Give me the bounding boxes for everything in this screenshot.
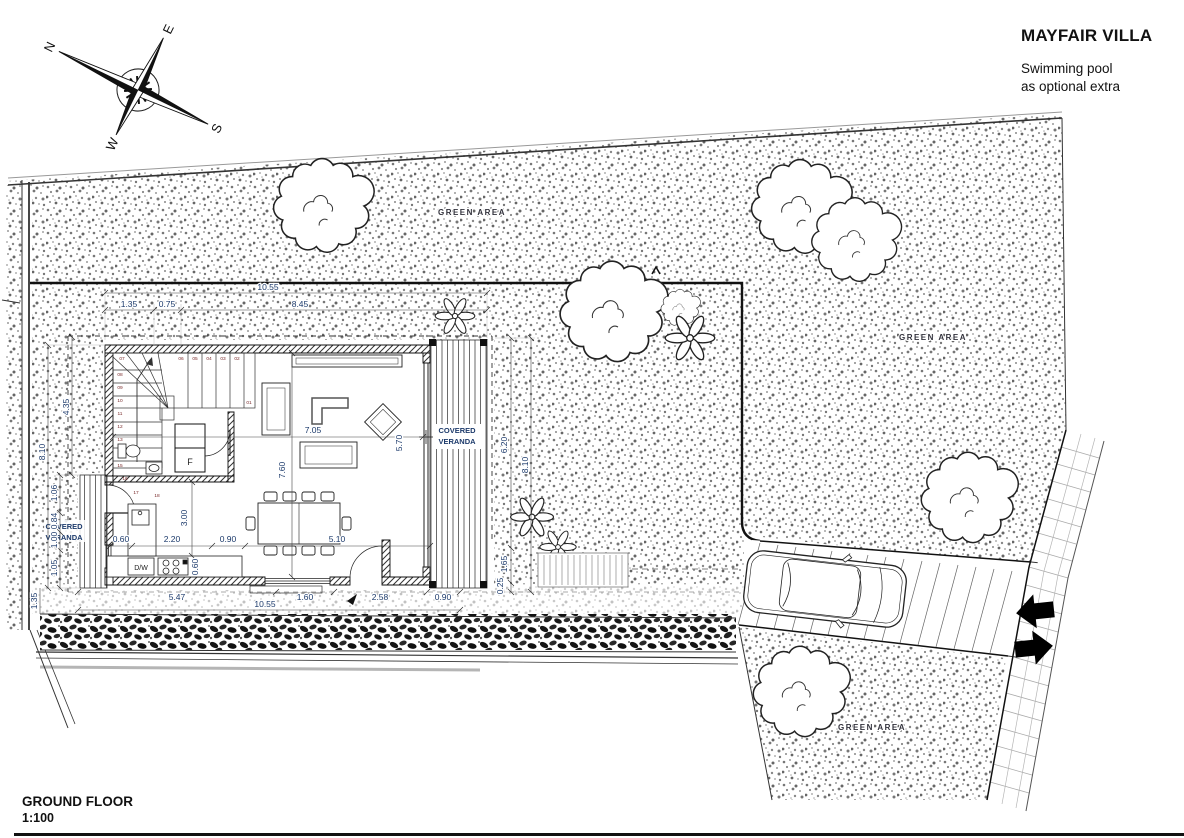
- svg-text:0.60: 0.60: [190, 558, 200, 575]
- svg-text:3.00: 3.00: [179, 509, 189, 526]
- svg-text:10.55: 10.55: [257, 282, 279, 292]
- green-area-label-3: GREEN AREA: [838, 723, 906, 732]
- svg-text:08: 08: [117, 372, 123, 378]
- svg-text:07: 07: [119, 356, 125, 362]
- svg-text:01: 01: [246, 400, 252, 406]
- covered-veranda-right: COVERED VERANDA: [429, 339, 487, 588]
- veranda-right-label-1: COVERED: [438, 426, 476, 435]
- svg-text:5.70: 5.70: [394, 434, 404, 451]
- svg-text:1.00: 1.00: [49, 531, 59, 548]
- page-title: MAYFAIR VILLA: [1021, 26, 1181, 46]
- svg-text:10.55: 10.55: [254, 599, 276, 609]
- svg-text:15: 15: [117, 463, 123, 469]
- svg-text:12: 12: [117, 424, 123, 430]
- svg-text:16: 16: [122, 476, 128, 482]
- svg-text:10: 10: [117, 398, 123, 404]
- drawing-footer: GROUND FLOOR 1:100: [22, 794, 133, 825]
- svg-text:1.05: 1.05: [49, 559, 59, 576]
- svg-text:0.84: 0.84: [49, 512, 59, 529]
- plan-name: GROUND FLOOR: [22, 794, 133, 809]
- compass-rose: N E S W: [14, 0, 256, 191]
- compass-east-label: E: [160, 22, 177, 37]
- svg-text:11: 11: [118, 411, 123, 417]
- svg-text:4.35: 4.35: [61, 398, 71, 415]
- svg-text:2.20: 2.20: [164, 534, 181, 544]
- page-bottom-rule: [14, 833, 1184, 836]
- green-area-label-2: GREEN AREA: [899, 333, 967, 342]
- svg-text:8.10: 8.10: [520, 456, 530, 473]
- svg-text:17: 17: [133, 490, 139, 496]
- subtitle-line-1: Swimming pool: [1021, 61, 1113, 76]
- svg-text:1.35: 1.35: [121, 299, 138, 309]
- compass-south-label: S: [208, 121, 225, 136]
- title-block: MAYFAIR VILLA Swimming pool as optional …: [1021, 26, 1181, 96]
- svg-text:0.60: 0.60: [113, 534, 130, 544]
- svg-text:1.65: 1.65: [499, 555, 509, 572]
- svg-text:6.20: 6.20: [499, 436, 509, 453]
- dishwasher-label: D/W: [134, 565, 148, 572]
- svg-text:7.60: 7.60: [277, 461, 287, 478]
- toilet-tank: [118, 444, 126, 458]
- svg-text:03: 03: [220, 356, 226, 362]
- svg-text:0.25: 0.25: [495, 577, 505, 594]
- site-plan-drawing: GREEN AREA GREEN AREA GREEN AREA: [0, 0, 1184, 838]
- fridge-label: F: [187, 457, 193, 467]
- house: COVERED VERANDA COVERED VERANDA: [44, 336, 494, 605]
- svg-text:2.58: 2.58: [372, 592, 389, 602]
- toilet: [126, 445, 140, 457]
- green-area-label-1: GREEN AREA: [438, 208, 506, 217]
- svg-text:1.35: 1.35: [29, 592, 39, 609]
- svg-text:13: 13: [117, 437, 123, 443]
- svg-text:8.45: 8.45: [292, 299, 309, 309]
- plan-scale: 1:100: [22, 811, 133, 825]
- compass-north-label: N: [41, 39, 59, 54]
- ramp: [538, 553, 628, 587]
- svg-text:8.10: 8.10: [37, 443, 47, 460]
- svg-text:0.90: 0.90: [220, 534, 237, 544]
- svg-text:5.47: 5.47: [169, 592, 186, 602]
- svg-text:04: 04: [206, 356, 212, 362]
- svg-text:1.60: 1.60: [297, 592, 314, 602]
- svg-text:1.06: 1.06: [49, 484, 59, 501]
- subtitle-line-2: as optional extra: [1021, 79, 1120, 94]
- svg-text:7.05: 7.05: [305, 425, 322, 435]
- svg-text:18: 18: [154, 493, 160, 499]
- hedge-band: [40, 614, 736, 652]
- green-strip-left: [6, 185, 22, 630]
- svg-text:5.10: 5.10: [329, 534, 346, 544]
- svg-text:09: 09: [117, 385, 123, 391]
- svg-text:06: 06: [178, 356, 184, 362]
- compass-west-label: W: [103, 135, 122, 153]
- veranda-right-label-2: VERANDA: [438, 437, 476, 446]
- svg-text:02: 02: [234, 356, 240, 362]
- svg-text:0.90: 0.90: [435, 592, 452, 602]
- svg-text:0.75: 0.75: [159, 299, 176, 309]
- floor-plan-page: GREEN AREA GREEN AREA GREEN AREA: [0, 0, 1184, 838]
- svg-text:05: 05: [192, 356, 198, 362]
- page-subtitle: Swimming pool as optional extra: [1021, 60, 1181, 96]
